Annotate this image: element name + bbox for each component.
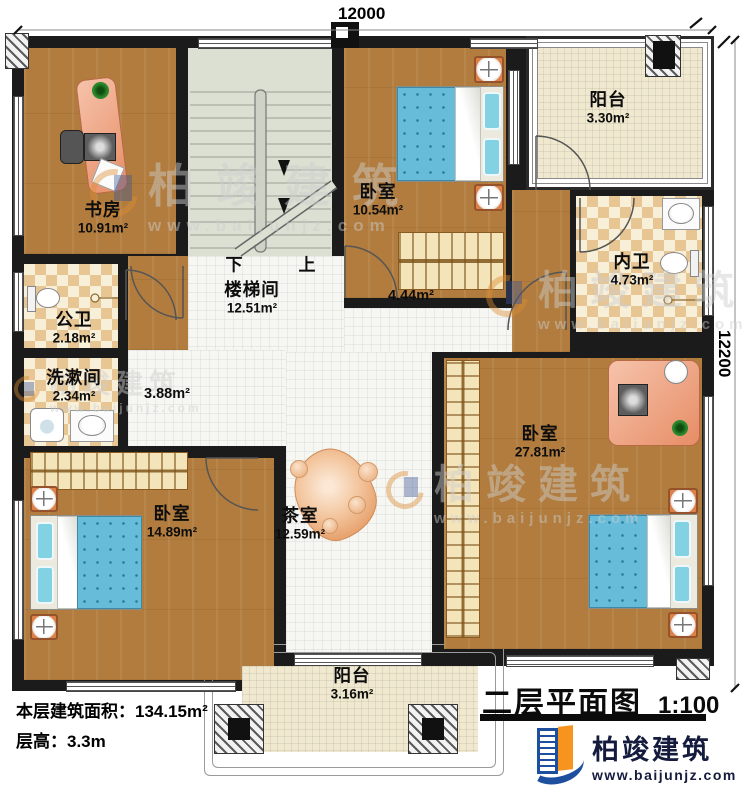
- bedroom-right-bed: [588, 514, 698, 609]
- bed-sheet: [57, 516, 79, 609]
- inner-bath-sink: [668, 203, 694, 224]
- room-label-bedroom-right: 卧室 27.81m²: [515, 425, 565, 460]
- room-name: 卧室: [515, 425, 565, 445]
- room-label-tea-room: 茶室 12.59m²: [275, 507, 325, 542]
- stairwell-floor: [188, 48, 332, 256]
- nightstand: [474, 184, 504, 211]
- room-area: 27.81m²: [515, 444, 565, 459]
- tea-room-pebble: [358, 462, 378, 482]
- window-inner-bath-right: [703, 206, 714, 316]
- roof-flue-cap: [336, 27, 348, 38]
- bedroom-right-plant-icon: [672, 420, 688, 436]
- window-tea-room-balcony: [294, 653, 422, 666]
- nightstand: [30, 614, 58, 640]
- room-area: 2.18m²: [53, 330, 96, 345]
- study-chair: [60, 130, 84, 164]
- pillow: [483, 92, 501, 130]
- bedroom-top-wardrobe: [398, 232, 504, 290]
- brand-logo-icon: [530, 726, 582, 784]
- hall-area-left: 3.88m²: [144, 386, 190, 402]
- floor-area-info: 本层建筑面积：134.15m²: [16, 697, 208, 722]
- brand-name: 柏竣建筑: [592, 728, 737, 767]
- room-name: 楼梯间: [224, 281, 280, 301]
- room-label-public-bath: 公卫 2.18m²: [53, 311, 96, 346]
- room-area: 10.91m²: [78, 220, 128, 235]
- mattress: [589, 515, 649, 608]
- room-label-inner-bath: 内卫 4.73m²: [611, 253, 654, 288]
- room-name: 阳台: [587, 91, 630, 111]
- bedroom-right-wardrobe: [446, 360, 480, 638]
- window-bedroom-right-bottom: [506, 655, 654, 667]
- bedroom-top-bed: [396, 86, 504, 182]
- column-balcony-left-core: [228, 718, 250, 740]
- room-label-bedroom-top: 卧室 10.54m²: [353, 183, 403, 218]
- room-name: 公卫: [53, 311, 96, 331]
- column-top-right-core: [653, 41, 675, 69]
- title-underline: [480, 714, 706, 721]
- bedroom-left-bed: [30, 515, 142, 610]
- pillow: [673, 565, 691, 603]
- wash-room-washer: [30, 408, 64, 442]
- corridor-left-floor: [128, 256, 188, 350]
- room-name: 洗漱间: [46, 369, 102, 389]
- window-study-left: [13, 96, 24, 236]
- window-top-right: [470, 38, 538, 49]
- room-name: 书房: [78, 201, 128, 221]
- mattress: [397, 87, 457, 181]
- nightstand: [474, 56, 504, 83]
- hall-floor-b: [344, 308, 512, 352]
- bedroom-right-monitor: [618, 384, 648, 416]
- stairs-down-label: 下: [226, 251, 243, 276]
- bed-sheet: [647, 515, 671, 608]
- room-area: 3.30m²: [587, 110, 630, 125]
- room-area: 2.34m²: [46, 388, 102, 403]
- dimension-top: 12000: [338, 4, 385, 24]
- brand-block: 柏竣建筑 www.baijunjz.com: [530, 726, 737, 784]
- corridor-right-floor: [512, 190, 570, 352]
- pillow: [673, 520, 691, 558]
- room-name: 卧室: [353, 183, 403, 203]
- window-bedroom-right: [703, 396, 714, 586]
- bedroom-right-lamp: [664, 360, 688, 384]
- bedroom-left-wardrobe: [30, 452, 188, 490]
- floor-height-info: 层高：3.3m: [16, 727, 106, 752]
- room-label-balcony-bottom: 阳台 3.16m²: [331, 667, 374, 702]
- stairs-up-label: 上: [299, 251, 316, 276]
- room-name: 卧室: [147, 505, 197, 525]
- brand-website: www.baijunjz.com: [592, 767, 737, 783]
- nightstand: [30, 486, 58, 512]
- room-label-study: 书房 10.91m²: [78, 201, 128, 236]
- mattress: [77, 516, 142, 609]
- dimension-right: 12200: [714, 330, 734, 377]
- column-top-left: [5, 33, 29, 69]
- floor-area-value: 134.15m²: [135, 702, 208, 721]
- room-area: 12.51m²: [224, 300, 280, 315]
- room-label-balcony-top: 阳台 3.30m²: [587, 91, 630, 126]
- room-area: 3.16m²: [331, 686, 374, 701]
- pillow: [36, 566, 54, 604]
- floor-height-label: 层高：: [16, 732, 67, 751]
- room-label-bedroom-left: 卧室 14.89m²: [147, 505, 197, 540]
- inner-bath-toilet-tank: [690, 250, 699, 277]
- nightstand: [668, 612, 698, 638]
- wash-room-sink: [78, 415, 106, 436]
- room-area: 14.89m²: [147, 524, 197, 539]
- room-name: 茶室: [275, 507, 325, 527]
- room-name: 内卫: [611, 253, 654, 273]
- room-name: 阳台: [331, 667, 374, 687]
- study-plant-icon: [92, 82, 109, 99]
- window-top-stairs: [198, 38, 332, 49]
- window-bedroom-top-balcony: [508, 70, 520, 165]
- room-label-wash-room: 洗漱间 2.34m²: [46, 369, 102, 404]
- column-bottom-right: [676, 658, 710, 680]
- floor-plan-canvas: 柏竣建筑 www.baijunjz.com 柏竣建筑 www.baijunjz.…: [0, 0, 750, 795]
- floor-height-value: 3.3m: [67, 732, 106, 751]
- public-bath-toilet: [36, 288, 60, 308]
- bed-sheet: [455, 87, 481, 181]
- window-bedroom-left: [13, 500, 24, 640]
- tea-room-pebble: [290, 460, 308, 478]
- public-bath-toilet-tank: [27, 286, 36, 312]
- hall-area-right: 4.44m²: [388, 288, 434, 304]
- room-label-stairwell: 楼梯间 12.51m²: [224, 281, 280, 316]
- nightstand: [668, 488, 698, 514]
- tea-room-pebble: [348, 496, 366, 514]
- pillow: [36, 522, 54, 560]
- window-bedroom-left-bottom: [66, 681, 236, 692]
- room-area: 10.54m²: [353, 202, 403, 217]
- window-public-bath-left: [13, 272, 24, 332]
- floor-area-label: 本层建筑面积：: [16, 702, 135, 721]
- room-area: 4.73m²: [611, 272, 654, 287]
- room-area: 12.59m²: [275, 526, 325, 541]
- inner-bath-toilet: [660, 252, 688, 274]
- pillow: [483, 138, 501, 176]
- column-balcony-right-core: [422, 718, 444, 740]
